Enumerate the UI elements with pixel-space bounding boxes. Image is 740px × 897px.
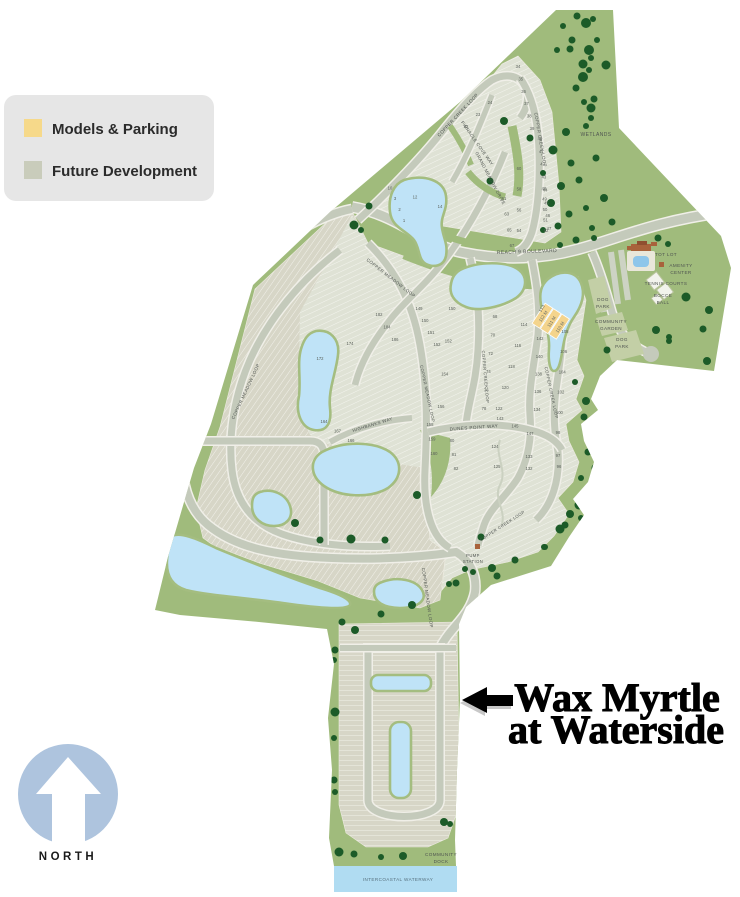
svg-text:159: 159 xyxy=(429,437,437,442)
svg-text:82: 82 xyxy=(454,466,459,471)
svg-text:54: 54 xyxy=(517,228,522,233)
svg-text:23: 23 xyxy=(476,112,481,117)
svg-text:CENTER: CENTER xyxy=(670,270,692,275)
svg-text:35: 35 xyxy=(518,76,523,81)
svg-text:133: 133 xyxy=(526,454,534,459)
svg-text:138: 138 xyxy=(535,372,543,377)
svg-text:PARK: PARK xyxy=(615,344,629,349)
svg-text:149: 149 xyxy=(416,306,424,311)
svg-text:DOG: DOG xyxy=(616,337,628,342)
svg-text:50: 50 xyxy=(543,207,548,212)
svg-text:68: 68 xyxy=(493,314,498,319)
svg-text:98: 98 xyxy=(556,430,561,435)
svg-text:63: 63 xyxy=(504,212,509,217)
svg-text:BOCCE: BOCCE xyxy=(654,293,672,298)
svg-text:164: 164 xyxy=(321,419,329,424)
svg-text:37: 37 xyxy=(524,101,529,106)
svg-text:97: 97 xyxy=(556,453,561,458)
svg-text:COMMUNITY: COMMUNITY xyxy=(595,319,627,324)
svg-text:140: 140 xyxy=(536,354,544,359)
svg-text:132: 132 xyxy=(526,466,534,471)
svg-text:14: 14 xyxy=(438,204,443,209)
svg-text:43: 43 xyxy=(542,175,547,180)
svg-text:96: 96 xyxy=(557,464,562,469)
svg-text:COMMUNITY: COMMUNITY xyxy=(425,852,457,857)
svg-text:Models & Parking: Models & Parking xyxy=(52,121,178,138)
svg-text:102: 102 xyxy=(557,390,565,395)
svg-text:GARDEN: GARDEN xyxy=(600,326,622,331)
svg-text:142: 142 xyxy=(537,336,545,341)
svg-text:56: 56 xyxy=(517,207,522,212)
svg-text:67: 67 xyxy=(510,243,515,248)
svg-text:167: 167 xyxy=(334,429,342,434)
svg-text:108: 108 xyxy=(562,329,570,334)
svg-text:118: 118 xyxy=(508,364,515,369)
svg-text:DOG: DOG xyxy=(597,297,609,302)
svg-text:76: 76 xyxy=(484,388,489,393)
svg-text:151: 151 xyxy=(428,330,436,335)
svg-text:65: 65 xyxy=(507,227,512,232)
svg-text:120: 120 xyxy=(502,385,510,390)
svg-text:152: 152 xyxy=(445,339,453,344)
svg-text:51: 51 xyxy=(543,218,548,223)
svg-text:60: 60 xyxy=(517,166,522,171)
svg-text:122: 122 xyxy=(496,406,504,411)
svg-text:34: 34 xyxy=(516,64,521,69)
svg-text:125: 125 xyxy=(494,464,502,469)
svg-text:WETLANDS: WETLANDS xyxy=(581,132,612,138)
svg-text:154: 154 xyxy=(441,371,449,376)
svg-text:41: 41 xyxy=(539,149,544,154)
svg-text:39: 39 xyxy=(530,126,535,131)
svg-text:58: 58 xyxy=(517,187,522,192)
svg-text:52: 52 xyxy=(544,228,549,233)
svg-text:38: 38 xyxy=(527,114,532,119)
svg-text:22: 22 xyxy=(464,124,469,129)
svg-text:136: 136 xyxy=(534,389,542,394)
svg-text:156: 156 xyxy=(438,404,446,409)
svg-text:80: 80 xyxy=(450,438,455,443)
svg-text:PUMP: PUMP xyxy=(466,553,480,558)
svg-text:Future Development: Future Development xyxy=(52,163,197,180)
svg-text:PARK: PARK xyxy=(596,304,610,309)
svg-text:116: 116 xyxy=(514,343,521,348)
svg-text:134: 134 xyxy=(534,407,542,412)
svg-text:10: 10 xyxy=(388,185,393,190)
svg-text:81: 81 xyxy=(452,452,457,457)
svg-text:TENNIS COURTS: TENNIS COURTS xyxy=(645,281,688,286)
svg-text:NORTH: NORTH xyxy=(39,851,97,863)
svg-text:TOT LOT: TOT LOT xyxy=(655,252,677,257)
svg-text:147: 147 xyxy=(527,431,535,436)
svg-text:42: 42 xyxy=(540,162,545,167)
svg-text:158: 158 xyxy=(427,422,435,427)
svg-text:174: 174 xyxy=(347,341,355,346)
svg-text:49: 49 xyxy=(542,197,547,202)
svg-text:40: 40 xyxy=(538,136,543,141)
svg-text:STATION: STATION xyxy=(463,559,483,564)
svg-text:BALL: BALL xyxy=(657,300,670,305)
svg-text:at Waterside: at Waterside xyxy=(508,707,724,752)
svg-text:INTERCOASTAL WATERWAY: INTERCOASTAL WATERWAY xyxy=(363,877,433,882)
svg-text:160: 160 xyxy=(431,451,439,456)
svg-text:61: 61 xyxy=(502,196,507,201)
svg-text:186: 186 xyxy=(392,337,400,342)
svg-text:166: 166 xyxy=(348,438,356,443)
svg-text:100: 100 xyxy=(556,410,564,415)
svg-text:78: 78 xyxy=(482,406,487,411)
svg-text:AMENITY: AMENITY xyxy=(669,263,692,268)
svg-text:152: 152 xyxy=(434,342,442,347)
svg-text:104: 104 xyxy=(559,369,567,374)
svg-text:150: 150 xyxy=(422,318,430,323)
svg-text:150: 150 xyxy=(449,306,457,311)
svg-text:74: 74 xyxy=(486,369,491,374)
svg-text:48: 48 xyxy=(542,186,547,191)
svg-text:114: 114 xyxy=(521,322,528,327)
svg-text:143: 143 xyxy=(497,416,505,421)
svg-text:DOCK: DOCK xyxy=(434,859,449,864)
svg-text:145: 145 xyxy=(512,424,520,429)
svg-text:36: 36 xyxy=(521,89,526,94)
svg-text:106: 106 xyxy=(560,349,568,354)
svg-text:72: 72 xyxy=(488,351,493,356)
svg-text:182: 182 xyxy=(376,312,384,317)
svg-text:24: 24 xyxy=(488,100,493,105)
svg-text:70: 70 xyxy=(490,332,495,337)
svg-text:124: 124 xyxy=(492,444,500,449)
svg-text:184: 184 xyxy=(384,325,392,330)
svg-text:12: 12 xyxy=(413,195,418,200)
svg-text:172: 172 xyxy=(317,356,325,361)
